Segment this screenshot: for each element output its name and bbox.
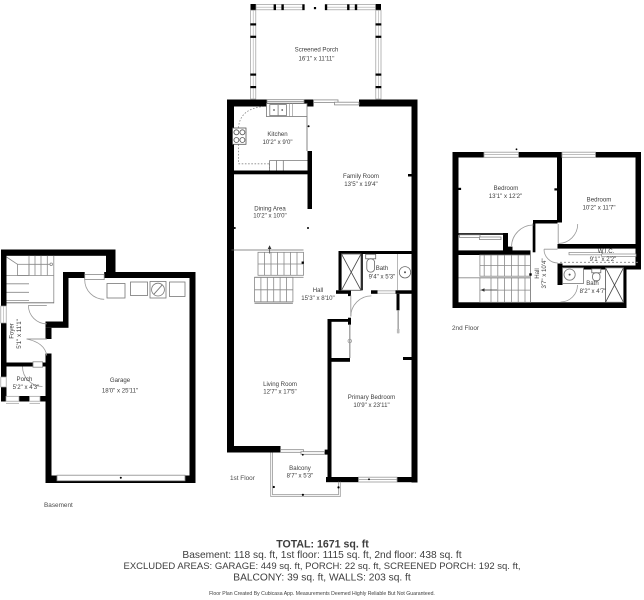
- svg-text:Bath: Bath: [586, 280, 599, 287]
- svg-text:Family Room: Family Room: [343, 173, 379, 180]
- svg-text:2nd Floor: 2nd Floor: [452, 325, 480, 332]
- svg-text:Hall: Hall: [313, 287, 324, 294]
- svg-text:Screened Porch: Screened Porch: [295, 47, 339, 54]
- svg-text:8'2" x 4'7": 8'2" x 4'7": [580, 288, 607, 295]
- svg-text:18'0" x 25'11": 18'0" x 25'11": [102, 388, 138, 395]
- svg-text:EXCLUDED AREAS: GARAGE: 449 sq: EXCLUDED AREAS: GARAGE: 449 sq. ft, PORC…: [123, 561, 520, 572]
- svg-text:TOTAL: 1671 sq. ft: TOTAL: 1671 sq. ft: [276, 539, 369, 551]
- svg-text:16'1" x 11'11": 16'1" x 11'11": [299, 56, 335, 63]
- svg-text:10'2" x 9'0": 10'2" x 9'0": [262, 139, 292, 146]
- svg-text:Hall: Hall: [534, 268, 541, 279]
- svg-text:5'1" x 11'1": 5'1" x 11'1": [16, 319, 23, 349]
- svg-text:Basement: Basement: [44, 502, 73, 509]
- svg-text:3'7" x 10'4": 3'7" x 10'4": [541, 258, 548, 288]
- svg-text:Primary Bedroom: Primary Bedroom: [348, 394, 395, 401]
- svg-text:10'9" x 23'11": 10'9" x 23'11": [353, 402, 389, 409]
- svg-text:Garage: Garage: [110, 377, 131, 384]
- svg-text:BALCONY: 39 sq. ft, WALLS: 203: BALCONY: 39 sq. ft, WALLS: 203 sq. ft: [233, 572, 411, 583]
- svg-text:15'3" x 8'10": 15'3" x 8'10": [301, 295, 334, 302]
- svg-text:13'1" x 12'2": 13'1" x 12'2": [489, 193, 522, 200]
- svg-text:9'4" x 5'3": 9'4" x 5'3": [369, 274, 396, 281]
- svg-text:W.I.C.: W.I.C.: [598, 248, 615, 255]
- svg-text:8'7" x 5'3": 8'7" x 5'3": [287, 473, 314, 480]
- svg-text:Bath: Bath: [376, 265, 389, 272]
- svg-text:1st Floor: 1st Floor: [230, 475, 256, 482]
- svg-text:Porch: Porch: [17, 376, 33, 383]
- svg-text:Bedroom: Bedroom: [587, 197, 612, 204]
- svg-text:13'5" x 19'4": 13'5" x 19'4": [344, 181, 377, 188]
- svg-text:9'1" x 2'2": 9'1" x 2'2": [590, 256, 617, 263]
- svg-text:12'7" x 17'5": 12'7" x 17'5": [263, 389, 296, 396]
- svg-text:Dining Area: Dining Area: [254, 206, 286, 213]
- svg-text:10'2" x 10'0": 10'2" x 10'0": [253, 213, 286, 220]
- svg-text:10'2" x 11'7": 10'2" x 11'7": [583, 205, 616, 212]
- svg-text:Floor Plan Created By Cubicasa: Floor Plan Created By Cubicasa App. Meas…: [209, 591, 435, 597]
- svg-text:Kitchen: Kitchen: [267, 131, 287, 138]
- svg-text:Foyer: Foyer: [9, 323, 16, 339]
- svg-text:Balcony: Balcony: [289, 465, 312, 472]
- svg-text:Living Room: Living Room: [263, 381, 297, 388]
- svg-text:Bedroom: Bedroom: [494, 185, 519, 192]
- svg-text:5'2" x 4'3": 5'2" x 4'3": [13, 384, 40, 391]
- svg-text:Basement: 118 sq. ft, 1st floo: Basement: 118 sq. ft, 1st floor: 1115 sq…: [182, 550, 461, 561]
